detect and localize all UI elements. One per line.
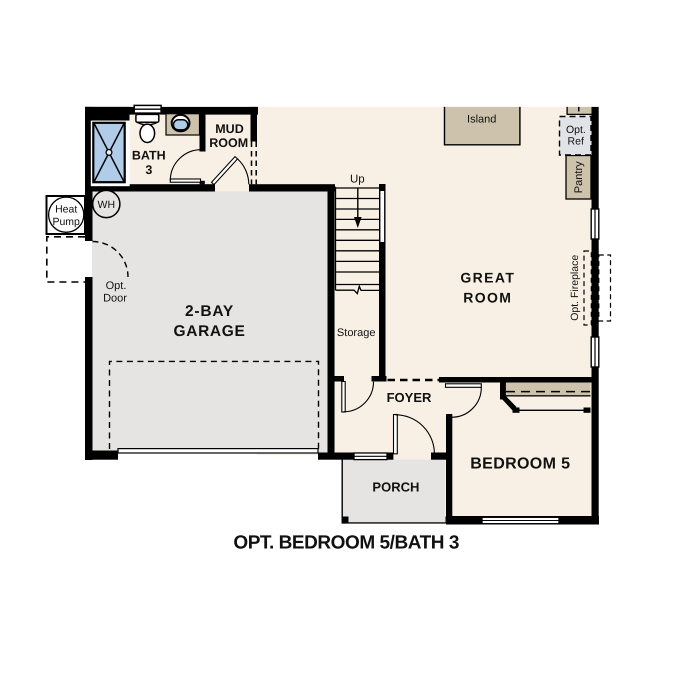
svg-text:MUD: MUD [215, 122, 243, 136]
svg-text:3: 3 [145, 163, 152, 177]
svg-text:OPT. BEDROOM 5/BATH 3: OPT. BEDROOM 5/BATH 3 [233, 532, 459, 553]
svg-text:BEDROOM 5: BEDROOM 5 [470, 456, 570, 473]
svg-text:ROOM: ROOM [463, 289, 512, 305]
svg-text:Opt.: Opt. [106, 280, 127, 292]
svg-text:WH: WH [98, 199, 116, 211]
svg-text:GREAT: GREAT [460, 269, 515, 285]
svg-text:Island: Island [467, 113, 496, 125]
svg-text:Door: Door [103, 292, 127, 304]
svg-text:2-BAY: 2-BAY [185, 303, 234, 320]
svg-text:FOYER: FOYER [387, 390, 432, 405]
svg-text:BATH: BATH [132, 149, 166, 163]
svg-text:Pantry: Pantry [573, 161, 585, 193]
svg-text:Opt. Fireplace: Opt. Fireplace [569, 255, 581, 321]
svg-text:Storage: Storage [337, 327, 376, 339]
svg-text:Ref: Ref [568, 135, 584, 147]
svg-text:Up: Up [350, 174, 365, 186]
svg-text:ROOM: ROOM [209, 136, 248, 150]
svg-text:GARAGE: GARAGE [174, 323, 246, 340]
svg-text:Pump: Pump [52, 216, 80, 228]
svg-text:PORCH: PORCH [372, 479, 419, 494]
svg-text:Heat: Heat [55, 203, 77, 215]
svg-text:Opt.: Opt. [566, 124, 586, 136]
